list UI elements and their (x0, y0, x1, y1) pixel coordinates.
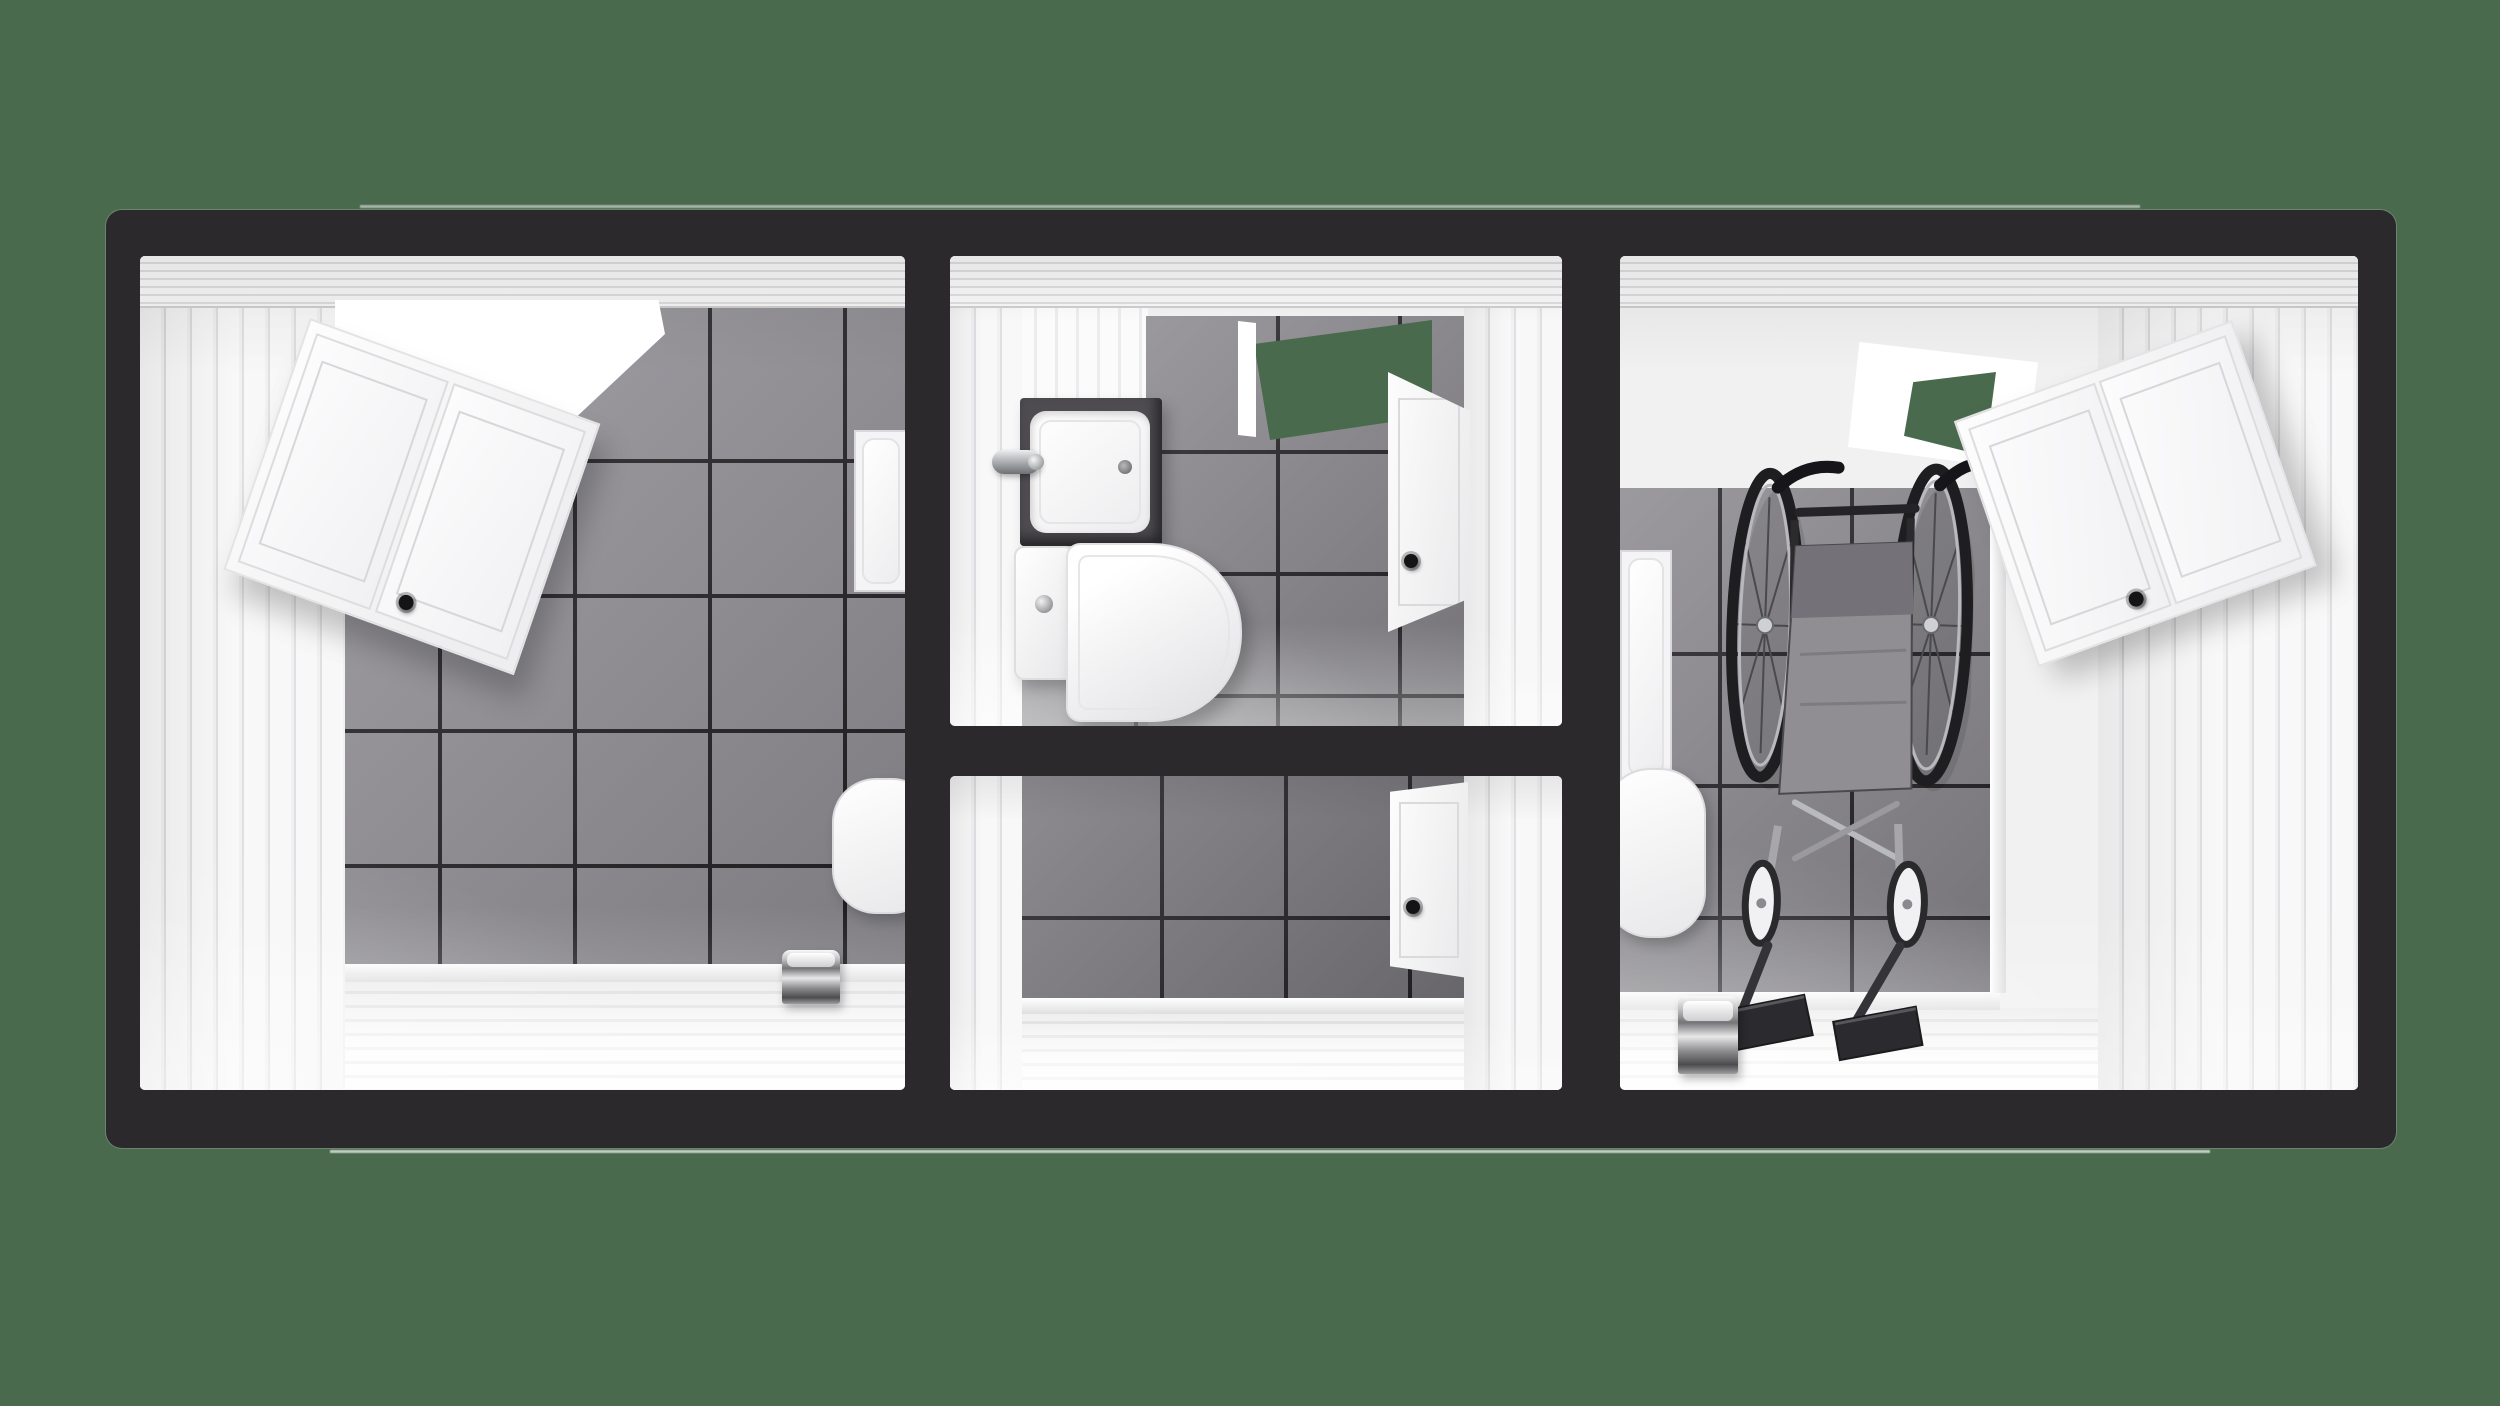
ceiling-planks (1620, 256, 2358, 308)
toilet (832, 778, 905, 914)
frame-top-highlight (360, 205, 2140, 208)
sink-vanity (1020, 398, 1162, 546)
plank-wall-left (950, 256, 1022, 726)
plank-wall-right (1464, 256, 1562, 726)
ceiling-planks (950, 256, 1562, 308)
toilet-tank (1014, 546, 1074, 680)
door-knob (1406, 900, 1420, 914)
flush-button (1035, 595, 1053, 613)
plank-wall-right (1464, 776, 1562, 1090)
shower-tray-basin (1628, 558, 1664, 776)
room-accessible-right (1620, 256, 2358, 1090)
shower-tray (1620, 550, 1672, 784)
wheelchair (1705, 452, 1979, 1088)
toilet-seat (1066, 543, 1242, 722)
shower-tray-basin (862, 438, 900, 584)
shower-tray (854, 430, 905, 592)
render-canvas (0, 0, 2500, 1406)
sink-basin (1030, 411, 1150, 533)
toilet-paper-holder (1678, 996, 1738, 1074)
door-knob (1404, 554, 1418, 568)
room-washroom-left (140, 256, 905, 1090)
baseboard (1016, 998, 1466, 1014)
drain (1118, 460, 1132, 474)
ground-highlight (330, 1150, 2210, 1153)
stall-shower (950, 776, 1562, 1090)
door (1390, 782, 1468, 978)
plank-wall-left (950, 776, 1022, 1090)
container-frame (106, 210, 2396, 1148)
faucet (992, 450, 1040, 474)
door-ajar (1388, 372, 1470, 632)
stall-wc (950, 256, 1562, 726)
toilet-paper-holder (782, 950, 840, 1004)
door-jamb (1238, 321, 1256, 437)
toilet (1620, 768, 1706, 938)
